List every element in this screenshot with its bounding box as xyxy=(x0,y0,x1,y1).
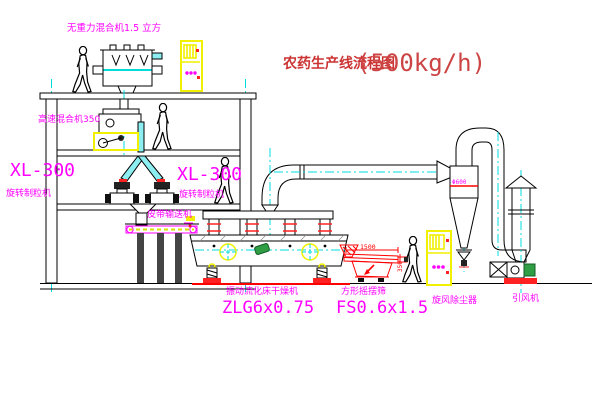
dim-sieve-height: 350 xyxy=(397,261,404,272)
gravity-mixer xyxy=(93,45,162,93)
title-capacity: (500kg/h) xyxy=(356,49,486,77)
label-granulator-left-model: XL-300 xyxy=(10,160,75,181)
indicator-light-icon xyxy=(446,271,449,274)
y-splitter-chute xyxy=(119,156,165,182)
label-granulator-mid-name: 旋转制粒机 xyxy=(179,188,224,200)
dim-cyclone-diameter: Φ600 xyxy=(452,179,467,186)
label-fan: 引风机 xyxy=(512,292,539,304)
label-gravity-mixer: 无重力混合机1.5 立方 xyxy=(67,22,161,34)
label-granulator-mid-model: XL-300 xyxy=(177,164,242,185)
person-second-floor xyxy=(153,103,171,149)
person-top-floor xyxy=(73,46,91,92)
high-speed-mixer xyxy=(94,90,144,158)
label-cyclone: 旋风除尘器 xyxy=(432,294,477,306)
label-sieve-model: FS0.6x1.5 xyxy=(336,298,428,318)
granulator-left xyxy=(105,182,139,204)
indicator-light-icon xyxy=(196,49,199,52)
control-cabinet-1 xyxy=(181,41,202,91)
indicator-light-icon xyxy=(197,76,200,79)
label-high-speed-mixer: 高速混合机350 xyxy=(38,113,100,125)
flow-diagram-canvas: 无重力混合机1.5 立方 农药生产线流程图 (500kg/h) 高速混合机350… xyxy=(0,0,600,403)
control-cabinet-2 xyxy=(427,231,451,285)
label-sieve-name: 方形摇摆筛 xyxy=(341,285,386,297)
label-dryer-name: 振动流化床干燥机 xyxy=(226,285,298,297)
indicator-light-icon xyxy=(446,239,449,242)
label-granulator-left-name: 旋转制粒机 xyxy=(6,187,51,199)
draft-fan xyxy=(490,262,537,284)
label-belt-conveyor: 皮带输送机 xyxy=(147,208,192,220)
dryer-leg-left xyxy=(203,264,221,284)
dryer-leg-right xyxy=(313,264,331,284)
belt-conveyor xyxy=(125,216,199,283)
diagram-svg: 无重力混合机1.5 立方 农药生产线流程图 (500kg/h) 高速混合机350… xyxy=(0,0,600,403)
dim-sieve-length: 1500 xyxy=(360,243,376,251)
label-dryer-model: ZLG6x0.75 xyxy=(222,298,314,318)
fan-motor-icon xyxy=(524,264,535,276)
granulator-right xyxy=(145,182,179,204)
